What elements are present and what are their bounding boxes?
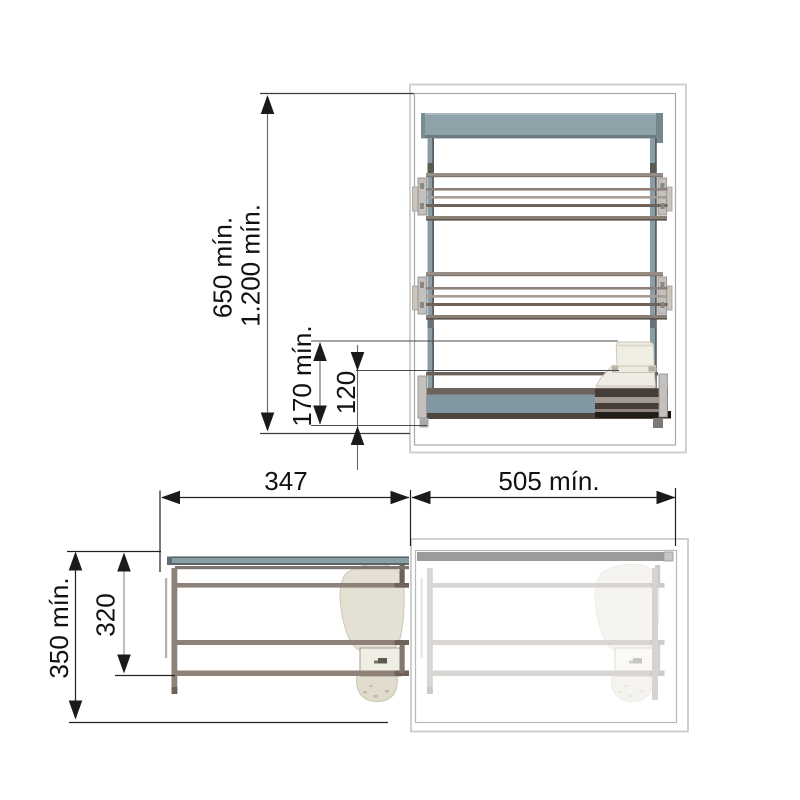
svg-text:650 mín.: 650 mín. — [208, 217, 238, 318]
svg-text:347: 347 — [264, 466, 307, 496]
svg-text:170 mín.: 170 mín. — [287, 325, 317, 426]
svg-text:350 mín.: 350 mín. — [44, 577, 74, 678]
svg-text:120: 120 — [331, 371, 361, 414]
svg-text:320: 320 — [91, 593, 121, 636]
svg-text:505 mín.: 505 mín. — [498, 466, 599, 496]
svg-text:1.200 mín.: 1.200 mín. — [236, 204, 266, 327]
